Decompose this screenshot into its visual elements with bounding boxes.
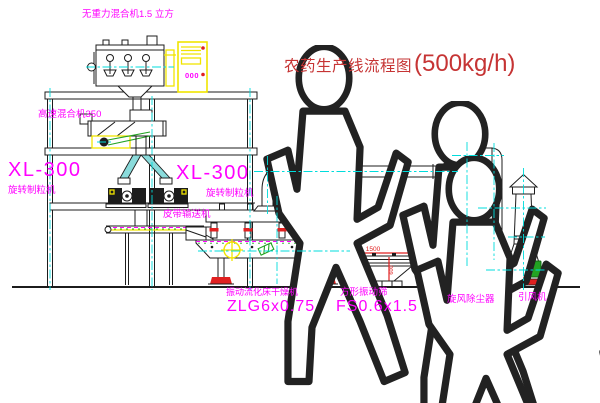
label-screen-model: FS0.6x1.5 [336, 299, 418, 315]
label-belt-conveyor: 皮带输送机 [163, 210, 211, 220]
control-cabinet-top: 000 [178, 42, 207, 92]
label-granulator-right-model: XL-300 [176, 163, 250, 183]
title-chinese: 农药生产线流程图 [284, 54, 412, 76]
flow-diagram-canvas: 000 [0, 0, 600, 403]
title-capacity: (500kg/h) [414, 50, 515, 78]
label-high-speed-mixer: 高速混合机350 [38, 110, 101, 120]
label-gravity-free-mixer: 无重力混合机1.5 立方 [82, 10, 174, 20]
label-dryer-name: 振动流化床干燥机 [226, 288, 298, 297]
label-fan: 引风机 [518, 293, 547, 303]
y-splitter-chute [120, 155, 170, 178]
label-granulator-right-name: 旋转制粒机 [206, 189, 254, 199]
diagram-title: 农药生产线流程图 (500kg/h) [284, 50, 515, 78]
indicator-light [201, 73, 205, 77]
screen-height-dim: 600 [389, 265, 395, 274]
label-granulator-left-model: XL-300 [8, 160, 82, 180]
cabinet-top-display: 000 [185, 71, 199, 80]
indicator-light [201, 46, 205, 50]
label-granulator-left-name: 旋转制粒机 [8, 186, 56, 196]
label-cyclone: 旋风除尘器 [447, 295, 495, 305]
belt-conveyor [105, 210, 213, 285]
label-dryer-model: ZLG6x0.75 [227, 299, 315, 315]
screen-length-dim: 1500 [366, 246, 381, 253]
worker-figure-top [267, 47, 408, 382]
label-screen-name: 方形振动筛 [340, 288, 388, 298]
gravity-free-mixer [88, 36, 177, 113]
